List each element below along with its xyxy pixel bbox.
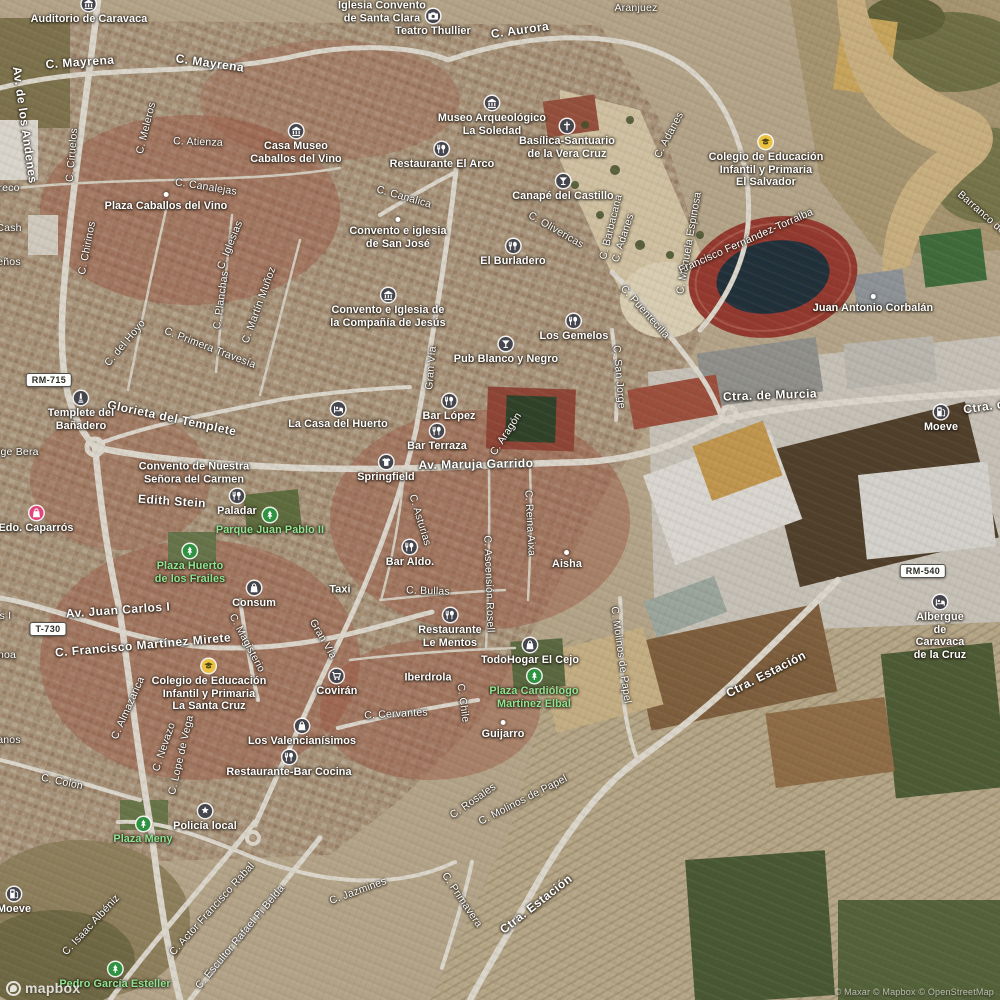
poi-label: Covirán — [317, 685, 358, 698]
poi: Basílica-Santuario de la Vera Cruz — [519, 119, 615, 160]
street-label: Gran Vía — [423, 346, 439, 391]
street-label: Aranjuez — [614, 2, 657, 14]
restaurant-icon — [403, 540, 417, 554]
poi: La Casa del Huerto — [288, 402, 388, 431]
poi: Edo. Caparrós — [0, 506, 74, 535]
clothing-icon — [379, 455, 393, 469]
poi-label: Templete del Bañadero — [48, 407, 114, 432]
restaurant-icon — [506, 239, 520, 253]
poi: El Burladero — [480, 239, 545, 268]
poi-label: Colegio de Educación Infantil y Primaria… — [709, 151, 824, 189]
poi: Plaza Meny — [113, 817, 172, 846]
poi: Colegio de Educación Infantil y Primaria… — [709, 135, 824, 189]
street-label: C. Mayrena — [175, 51, 245, 74]
street-label: C. Canalica — [375, 183, 433, 210]
poi-label: Albergue de Caravaca de la Cruz — [910, 611, 970, 662]
park-icon — [183, 544, 197, 558]
police-icon — [198, 804, 212, 818]
dot-icon — [871, 294, 876, 299]
map-attribution[interactable]: © Maxar © Mapbox © OpenStreetMap — [835, 987, 994, 997]
street-label: Av. Juan Carlos I — [65, 599, 170, 620]
poi-label: El Burladero — [480, 255, 545, 268]
poi: Moeve — [0, 887, 31, 916]
poi-label: Moeve — [924, 421, 958, 434]
route-shield: RM-715 — [26, 373, 72, 387]
street-label: eños — [0, 256, 21, 268]
street-label: C. Escultor Rafael Pi Belda — [193, 883, 287, 992]
street-label: Barranco de San — [955, 189, 1000, 252]
street-label: C. Asturias — [407, 493, 434, 547]
poi: Moeve — [924, 405, 958, 434]
poi: Covirán — [317, 669, 358, 698]
poi: Templete del Bañadero — [48, 391, 114, 432]
street-label: anos — [0, 734, 21, 746]
restaurant-icon — [282, 750, 296, 764]
fuel-icon — [7, 887, 21, 901]
street-label: C. Ciruelos — [64, 128, 81, 183]
street-label: Av. Juan Carlos I — [0, 610, 11, 622]
poi: Plaza Caballos del Vino — [105, 192, 228, 213]
poi-label: Restaurante Le Mentos — [418, 624, 482, 649]
street-label: Gran Vía — [307, 617, 339, 661]
museum-icon — [381, 288, 395, 302]
street-label: C. Reina Aixa — [522, 490, 537, 557]
dot-icon — [565, 550, 570, 555]
school-icon — [202, 659, 216, 673]
mapbox-logo-icon — [6, 981, 21, 996]
poi: Convento e iglesia de San José — [349, 217, 446, 250]
museum-icon — [485, 96, 499, 110]
poi-label: Canapé del Castillo — [512, 190, 614, 203]
poi-label: Plaza Huerto de los Frailes — [155, 560, 225, 585]
poi-label: TodoHogar El Cejo — [481, 654, 579, 667]
poi-label: Parque Juan Pablo II — [216, 524, 324, 537]
poi-label: Basílica-Santuario de la Vera Cruz — [519, 135, 615, 160]
poi: Teatro Thullier — [395, 9, 471, 38]
park-icon — [136, 817, 150, 831]
street-label: Jorge Bera — [0, 446, 39, 458]
monument-icon — [74, 391, 88, 405]
poi-label: Convento e iglesia de San José — [349, 225, 446, 250]
street-label: Av. de los Andenes — [10, 66, 40, 185]
poi: Restaurante-Bar Cocina — [226, 750, 351, 779]
street-label: C. Actor Francisco Rabal — [167, 860, 257, 958]
poi-label: Taxi — [329, 584, 350, 597]
poi-label: Convento de Nuestra Señora del Carmen — [139, 460, 250, 485]
street-label: Ctra. de Murcia — [723, 386, 818, 403]
street-label: Av. Maruja Garrido — [418, 456, 533, 472]
street-label: C. Bullas — [406, 584, 450, 598]
shop-pink-icon — [29, 506, 43, 520]
dot-icon — [500, 720, 505, 725]
poi-label: Plaza Caballos del Vino — [105, 200, 228, 213]
street-label: Ctra. Estación — [724, 648, 808, 700]
poi-label: Bar López — [422, 410, 475, 423]
street-label: C. Atienza — [173, 135, 223, 149]
poi-label: Restaurante-Bar Cocina — [226, 766, 351, 779]
poi: TodoHogar El Cejo — [481, 638, 579, 667]
poi-label: Aisha — [552, 558, 582, 571]
park-icon — [263, 508, 277, 522]
street-label: C. Cervantes — [364, 706, 428, 721]
dot-icon — [395, 217, 400, 222]
poi-label: Plaza Meny — [113, 833, 172, 846]
poi-label: Edo. Caparrós — [0, 522, 74, 535]
poi: Albergue de Caravaca de la Cruz — [910, 595, 970, 662]
street-label: areco — [0, 182, 20, 194]
poi-label: Policía local — [173, 820, 237, 833]
mapbox-logo[interactable]: mapbox — [6, 980, 80, 996]
poi-label: Bar Aldo. — [386, 556, 435, 569]
poi: Los Valencianísimos — [248, 719, 356, 748]
poi: Consum — [232, 581, 276, 610]
street-label: C. Mayrena — [45, 53, 115, 72]
street-label: C. Planchas — [211, 270, 231, 330]
street-label: C. Isaac Albéniz — [60, 892, 122, 958]
street-label: C. Manuela Espinosa — [674, 191, 704, 295]
poi: Plaza Cardiólogo Martínez Elbal — [489, 669, 578, 710]
street-label: C. Meleros — [134, 101, 158, 155]
mapbox-wordmark: mapbox — [25, 980, 80, 996]
street-label: C. Colón — [40, 772, 84, 793]
street-label: C. Primavera — [439, 870, 485, 929]
grocery-icon — [330, 669, 344, 683]
museum-icon — [289, 124, 303, 138]
park-icon — [108, 962, 122, 976]
satellite-map-canvas[interactable]: C. MayrenaC. MayrenaAv. de los AndenesC.… — [0, 0, 1000, 1000]
poi-label: Convento e Iglesia de la Compañía de Jes… — [330, 304, 445, 329]
shopping-icon — [523, 638, 537, 652]
poi: Aisha — [552, 550, 582, 571]
poi: Juan Antonio Corbalán — [813, 294, 933, 315]
shopping-icon — [247, 581, 261, 595]
route-shield: RM-540 — [900, 564, 946, 578]
poi: Policía local — [173, 804, 237, 833]
poi: Pub Blanco y Negro — [454, 337, 558, 366]
poi-label: Los Valencianísimos — [248, 735, 356, 748]
poi: Colegio de Educación Infantil y Primaria… — [152, 659, 267, 713]
poi: Canapé del Castillo — [512, 174, 614, 203]
restaurant-icon — [430, 424, 444, 438]
restaurant-icon — [230, 489, 244, 503]
poi-label: Iberdrola — [404, 672, 451, 685]
restaurant-icon — [435, 142, 449, 156]
poi-label: Plaza Cardiólogo Martínez Elbal — [489, 685, 578, 710]
street-label: Cash — [0, 222, 22, 234]
bar-icon — [499, 337, 513, 351]
poi-label: Springfield — [357, 471, 414, 484]
poi: Plaza Huerto de los Frailes — [155, 544, 225, 585]
poi: Auditorio de Caravaca — [31, 0, 148, 26]
poi: Convento e Iglesia de la Compañía de Jes… — [330, 288, 445, 329]
street-label: C. Iglesias — [215, 219, 245, 271]
poi-label: Casa Museo Caballos del Vino — [250, 140, 342, 165]
street-label: C. Adanes — [652, 110, 686, 160]
poi-label: Juan Antonio Corbalán — [813, 302, 933, 315]
poi-label: Auditorio de Caravaca — [31, 13, 148, 26]
poi-label: Pub Blanco y Negro — [454, 353, 558, 366]
poi: Restaurante El Arco — [390, 142, 495, 171]
lodging-icon — [933, 595, 947, 609]
poi: Casa Museo Caballos del Vino — [250, 124, 342, 165]
restaurant-icon — [567, 314, 581, 328]
street-label: Ctra. de Murcia — [962, 390, 1000, 417]
street-label: Edith Stein — [138, 492, 207, 511]
park-icon — [527, 669, 541, 683]
restaurant-icon — [443, 608, 457, 622]
street-label: C. del Hoyo — [102, 317, 148, 368]
street-label: C. Almazarica — [109, 675, 147, 741]
street-label: C. Francisco Martínez Mirete — [54, 630, 231, 659]
poi: Convento de Nuestra Señora del Carmen — [139, 458, 250, 485]
poi-label: Consum — [232, 597, 276, 610]
school-icon — [759, 135, 773, 149]
route-shield: T-730 — [29, 622, 66, 636]
street-label: C. Puentecilla — [618, 283, 672, 341]
street-label: C. Chirinos — [76, 220, 98, 275]
poi: Bar Terraza — [407, 424, 467, 453]
poi: Bar Aldo. — [386, 540, 435, 569]
street-label: C. San Jorge — [610, 345, 628, 409]
street-label: C. Aurora — [490, 19, 550, 41]
street-label: C. Chile — [454, 683, 471, 723]
dot-icon — [164, 192, 169, 197]
poi: Restaurante Le Mentos — [418, 608, 482, 649]
poi-label: Teatro Thullier — [395, 25, 471, 38]
street-label: C. Jazmines — [328, 875, 388, 907]
poi: Iberdrola — [404, 670, 451, 685]
poi-label: Guijarro — [482, 728, 525, 741]
poi-label: Moeve — [0, 903, 31, 916]
street-label: C. Molinos de Papel — [608, 606, 633, 704]
lodging-icon — [331, 402, 345, 416]
shopping-icon — [295, 719, 309, 733]
religious-icon — [560, 119, 574, 133]
street-label: C. Martín Muñoz — [240, 265, 279, 345]
museum-icon — [82, 0, 96, 11]
street-label: Glorieta del Templete — [106, 397, 238, 438]
bar-icon — [556, 174, 570, 188]
poi-label: Restaurante El Arco — [390, 158, 495, 171]
poi: Springfield — [357, 455, 414, 484]
poi: Bar López — [422, 394, 475, 423]
poi: Parque Juan Pablo II — [216, 508, 324, 537]
street-label: noa — [0, 649, 16, 661]
poi: Guijarro — [482, 720, 525, 741]
map-labels-layer: C. MayrenaC. MayrenaAv. de los AndenesC.… — [0, 0, 1000, 1000]
street-label: C. Aragón — [488, 410, 524, 457]
poi-label: Bar Terraza — [407, 440, 467, 453]
poi-label: Colegio de Educación Infantil y Primaria… — [152, 675, 267, 713]
fuel-icon — [934, 405, 948, 419]
restaurant-icon — [442, 394, 456, 408]
street-label: Ctra. Estación — [497, 871, 575, 936]
attraction-icon — [426, 9, 440, 23]
street-label: C. Ascensión Rosell — [481, 535, 496, 633]
poi-label: La Casa del Huerto — [288, 418, 388, 431]
poi: Taxi — [329, 582, 350, 597]
